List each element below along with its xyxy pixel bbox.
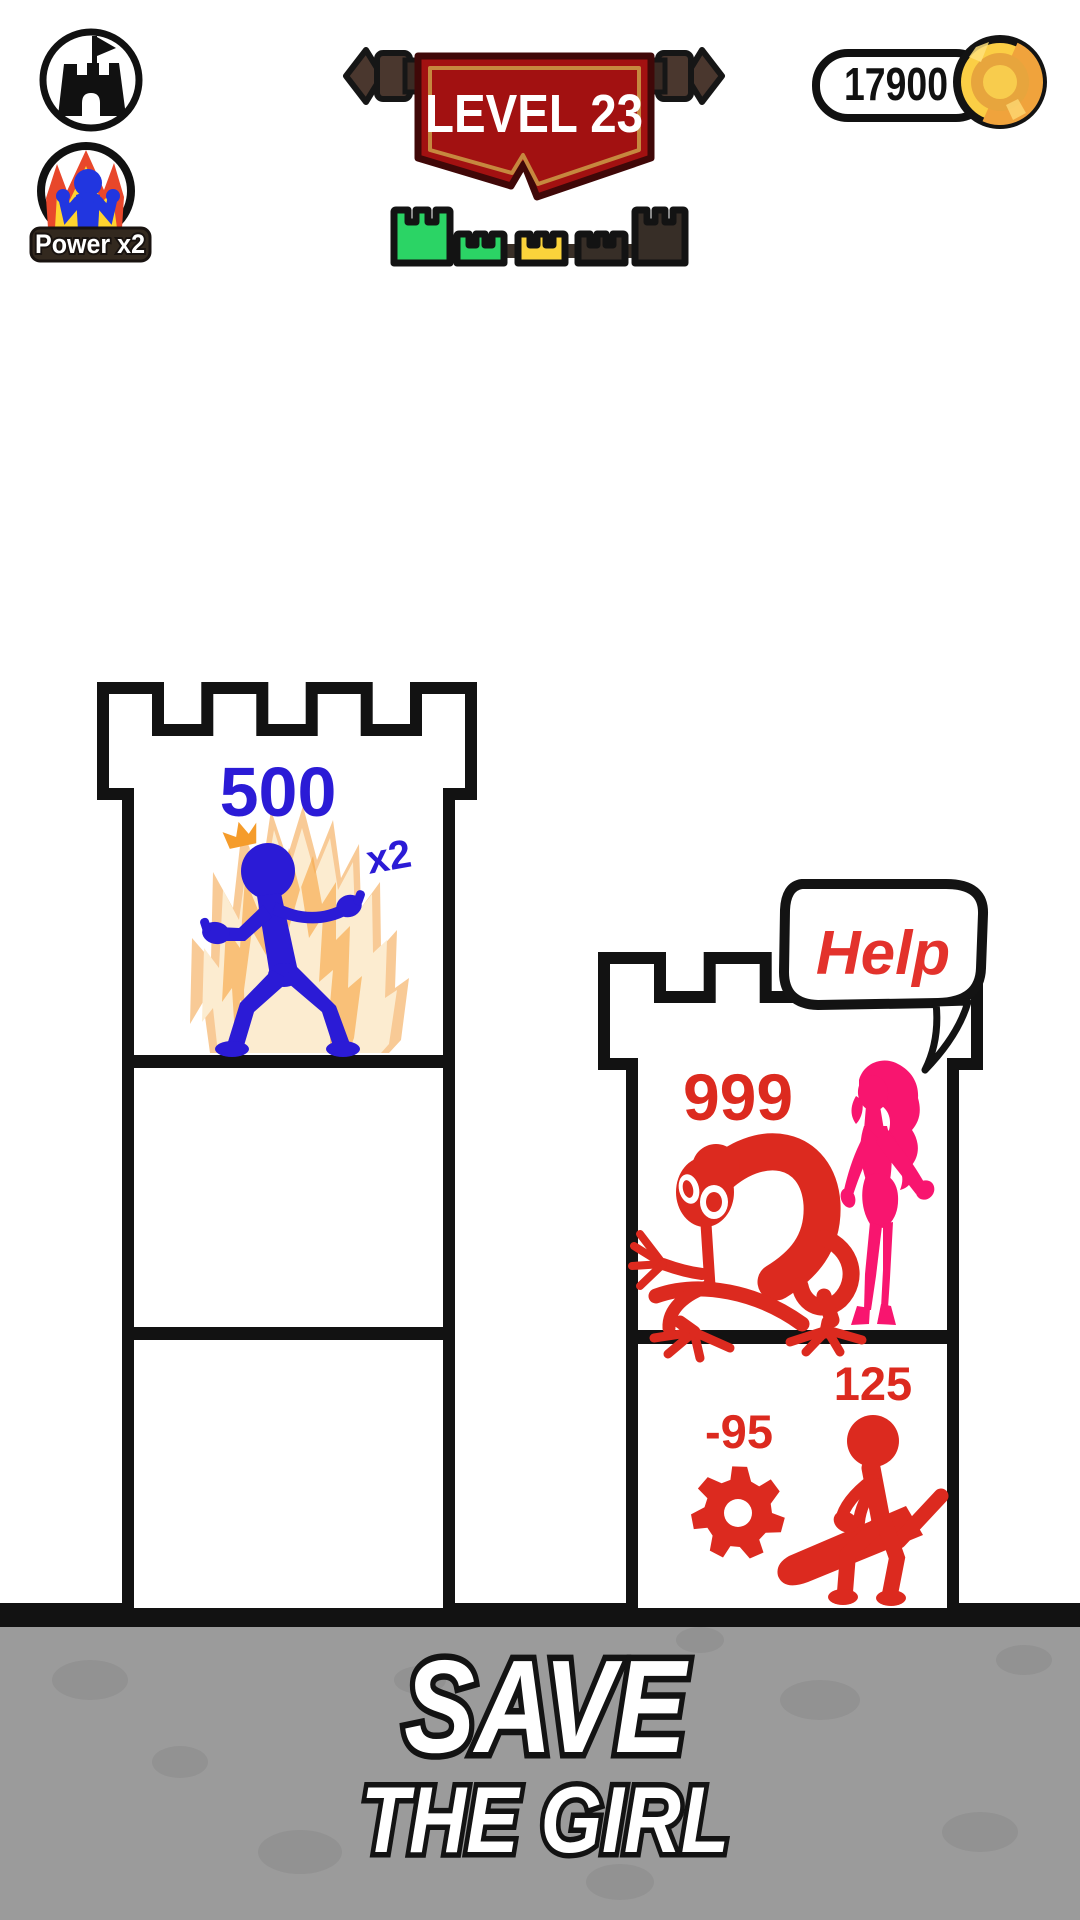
svg-text:SAVE: SAVE — [404, 1633, 689, 1780]
svg-text:THE GIRL: THE GIRL — [361, 1767, 729, 1872]
svg-text:500: 500 — [220, 753, 337, 831]
svg-text:LEVEL 23: LEVEL 23 — [425, 84, 643, 144]
svg-text:17900: 17900 — [844, 58, 948, 110]
svg-text:Power x2: Power x2 — [35, 229, 145, 259]
svg-text:125: 125 — [834, 1357, 912, 1410]
svg-text:999: 999 — [683, 1060, 793, 1134]
svg-text:-95: -95 — [705, 1405, 773, 1458]
svg-text:x2: x2 — [363, 832, 414, 883]
svg-text:Help: Help — [816, 919, 950, 988]
